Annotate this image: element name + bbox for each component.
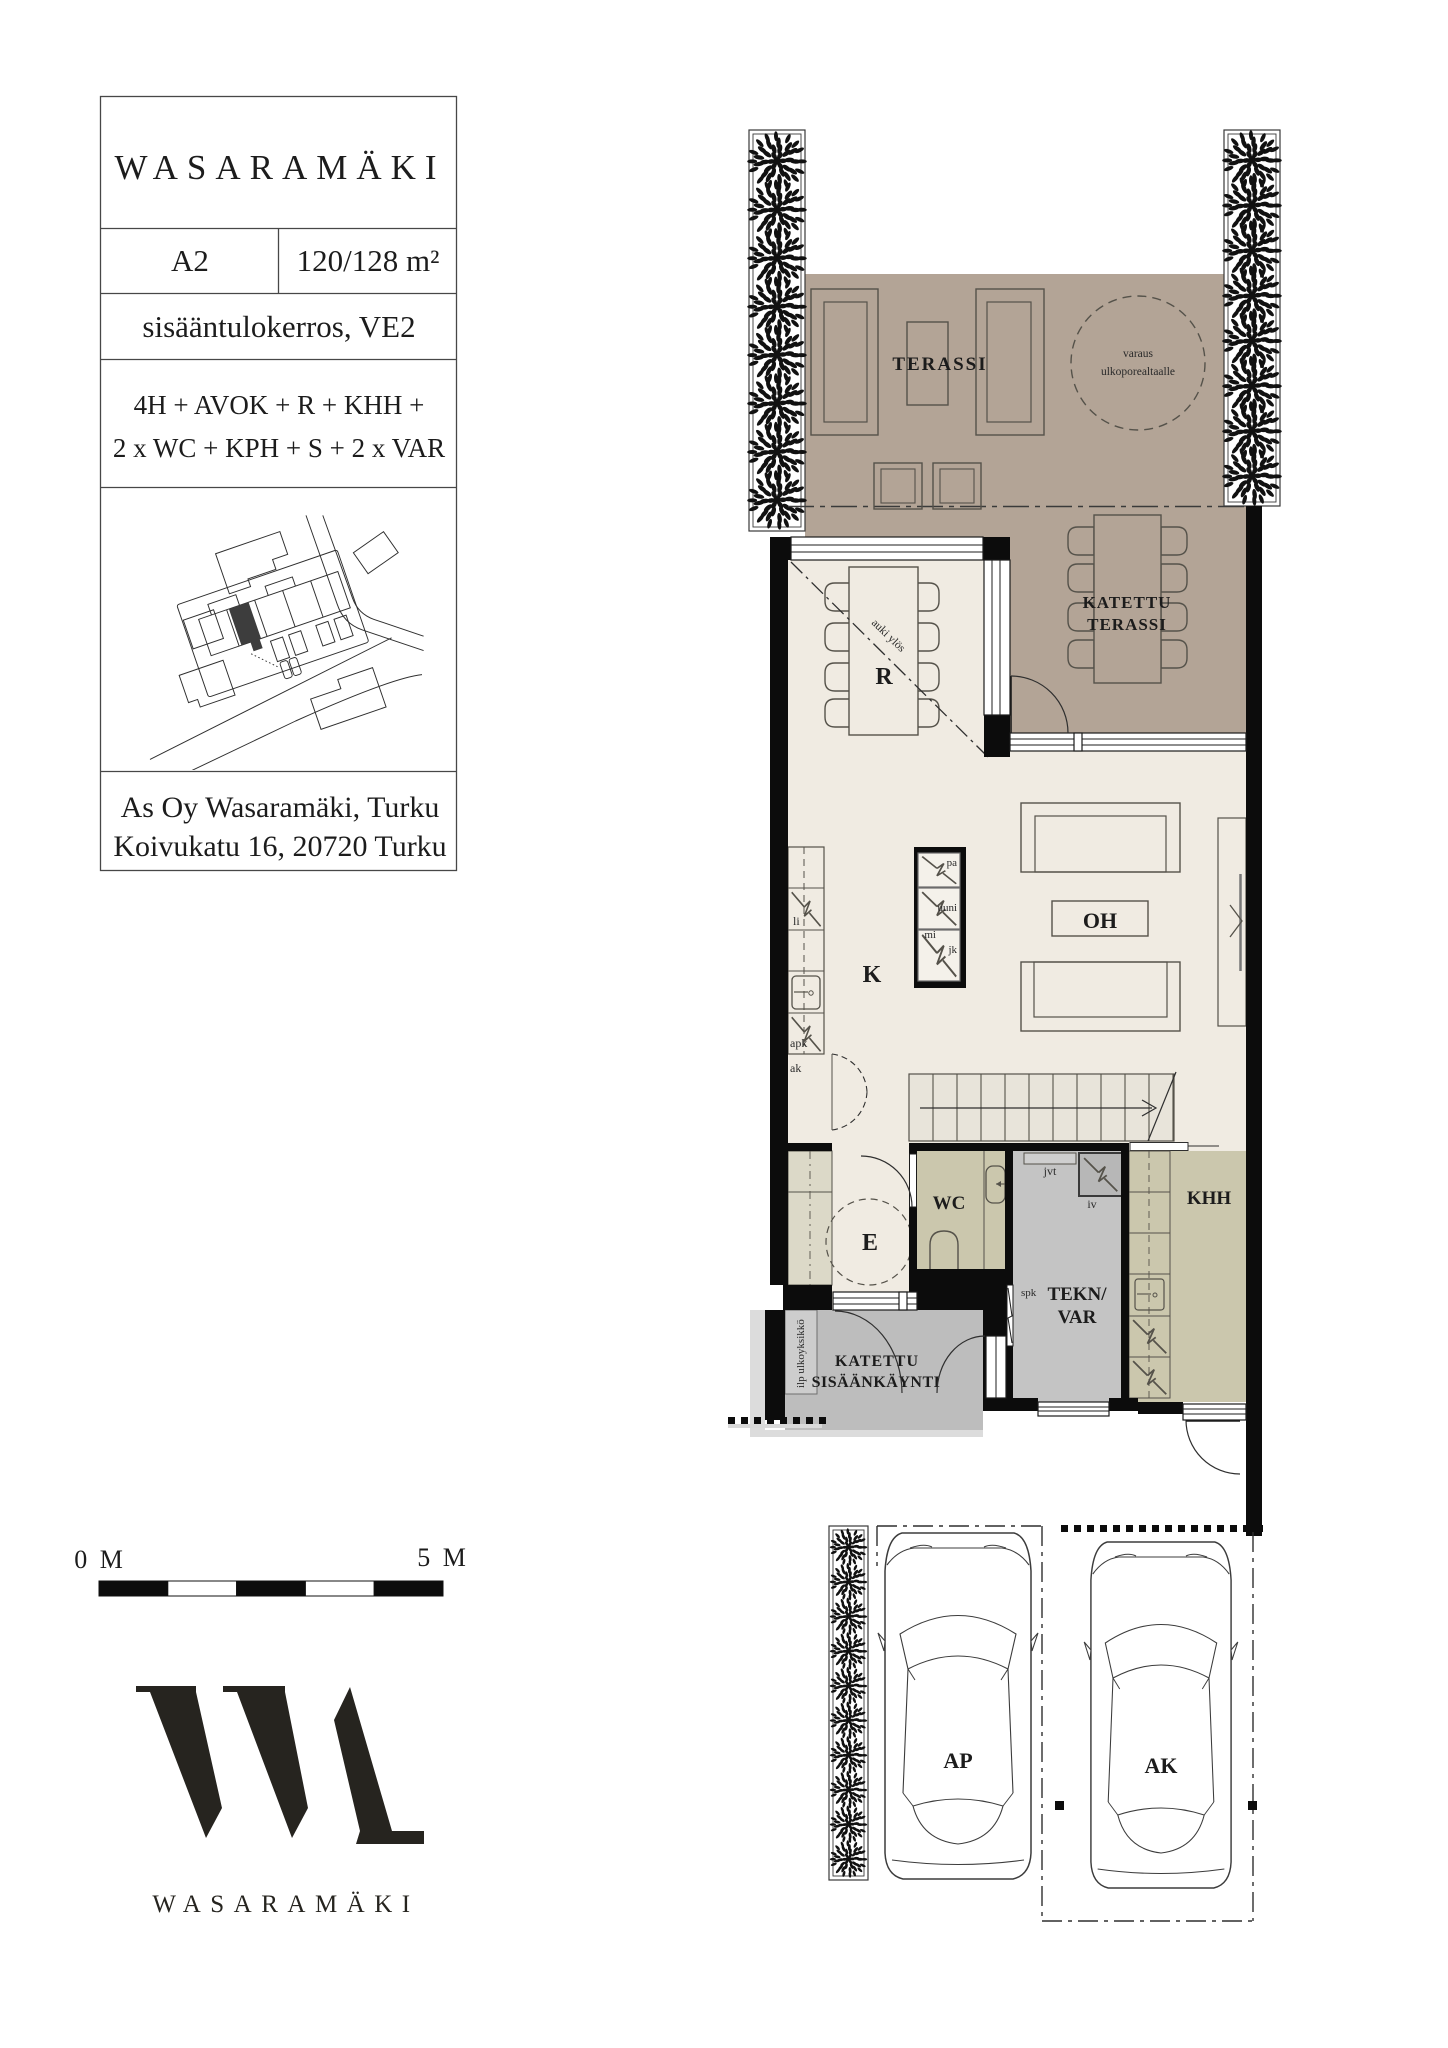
- svg-text:A2: A2: [171, 243, 209, 278]
- svg-text:jk: jk: [947, 944, 957, 956]
- svg-text:OH: OH: [1083, 908, 1117, 933]
- svg-text:AK: AK: [1145, 1753, 1178, 1778]
- svg-text:TERASSI: TERASSI: [1087, 615, 1167, 634]
- svg-text:apk: apk: [790, 1036, 807, 1050]
- svg-text:WC: WC: [933, 1193, 966, 1214]
- svg-text:TEKN/: TEKN/: [1047, 1284, 1107, 1305]
- svg-text:ilp ulkoyksikkö: ilp ulkoyksikkö: [795, 1319, 807, 1388]
- svg-text:li: li: [793, 914, 800, 928]
- svg-text:TERASSI: TERASSI: [892, 354, 987, 375]
- svg-text:SISÄÄNKÄYNTI: SISÄÄNKÄYNTI: [812, 1373, 941, 1391]
- svg-text:ak: ak: [790, 1061, 801, 1075]
- svg-text:KHH: KHH: [1187, 1188, 1232, 1209]
- svg-text:KATETTU: KATETTU: [1083, 593, 1172, 612]
- svg-text:jvt: jvt: [1043, 1164, 1057, 1178]
- svg-text:WASARAMÄKI: WASARAMÄKI: [114, 148, 445, 187]
- svg-text:spk: spk: [1021, 1287, 1037, 1299]
- svg-text:0 M: 0 M: [74, 1545, 126, 1574]
- svg-text:varaus: varaus: [1123, 348, 1154, 360]
- svg-text:R: R: [875, 664, 893, 690]
- svg-text:uuni: uuni: [937, 902, 957, 914]
- svg-text:KATETTU: KATETTU: [835, 1353, 919, 1370]
- svg-text:AP: AP: [943, 1748, 972, 1773]
- svg-text:K: K: [863, 962, 882, 988]
- svg-text:2 x WC + KPH + S + 2 x VAR: 2 x WC + KPH + S + 2 x VAR: [113, 433, 445, 463]
- svg-text:120/128 m²: 120/128 m²: [297, 243, 440, 278]
- svg-text:4H + AVOK + R + KHH +: 4H + AVOK + R + KHH +: [134, 390, 425, 420]
- svg-text:E: E: [862, 1230, 878, 1256]
- svg-text:VAR: VAR: [1058, 1307, 1097, 1328]
- svg-text:5 M: 5 M: [417, 1543, 469, 1572]
- svg-text:mi: mi: [924, 929, 936, 941]
- svg-text:WASARAMÄKI: WASARAMÄKI: [152, 1891, 419, 1918]
- svg-text:As Oy Wasaramäki, Turku: As Oy Wasaramäki, Turku: [121, 791, 440, 824]
- svg-text:pa: pa: [947, 857, 958, 869]
- svg-text:sisääntulokerros, VE2: sisääntulokerros, VE2: [142, 309, 415, 344]
- svg-text:iv: iv: [1087, 1197, 1096, 1211]
- svg-text:Koivukatu 16, 20720 Turku: Koivukatu 16, 20720 Turku: [113, 830, 446, 863]
- svg-text:ulkoporealtaalle: ulkoporealtaalle: [1101, 366, 1175, 378]
